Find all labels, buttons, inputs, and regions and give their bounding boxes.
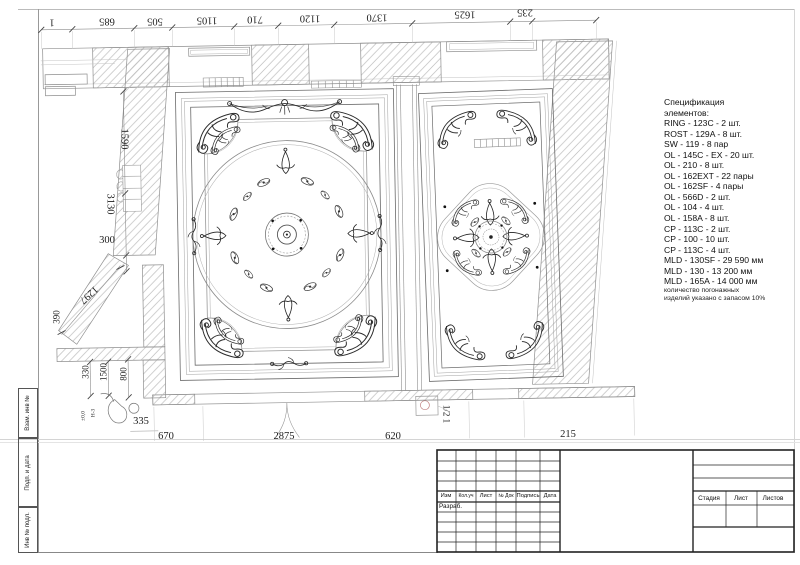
dim-lower-330: 330 <box>82 365 91 379</box>
margin-cell-podp: Подп. и дата <box>18 438 38 507</box>
dim-bottom-670: 670 <box>158 432 174 441</box>
margin-label-vzam: Взам. инв № <box>25 395 31 431</box>
tb-header-data: Дата <box>544 493 557 499</box>
tb-header-list2: Лист <box>734 495 748 502</box>
spec-item: RING - 123C - 2 шт. <box>664 118 765 129</box>
margin-label-podp: Подп. и дата <box>25 455 31 490</box>
dim-top-710: 710 <box>247 13 263 24</box>
dim-top-1370: 1370 <box>367 11 388 22</box>
right-medallion-rosette <box>452 198 530 276</box>
dim-lower-800: 800 <box>120 367 129 381</box>
left-ceiling-panel <box>175 75 398 381</box>
viewport-clip-line-2 <box>0 442 800 443</box>
margin-cell-vzam: Взам. инв № <box>18 388 38 438</box>
drawing-sheet: 1 685 505 1105 710 1120 1370 1625 235 15… <box>0 0 800 565</box>
tb-header-izm: Изм <box>441 493 452 499</box>
spec-item: SW - 119 - 8 пар <box>664 139 765 150</box>
spec-item: CP - 100 - 10 шт. <box>664 234 765 245</box>
tb-header-list: Лист <box>480 493 493 499</box>
tb-header-ndok: № Док <box>498 493 513 499</box>
tb-header-koluch: Кол.уч <box>459 493 474 499</box>
spec-item: CP - 113C - 4 шт. <box>664 245 765 256</box>
sheet-bottom-frame <box>38 552 438 553</box>
margin-label-inv: Инв № подл. <box>25 512 31 548</box>
tb-header-stadia: Стадия <box>698 495 720 502</box>
spec-item: OL - 158A - 8 шт. <box>664 213 765 224</box>
dim-top-505: 505 <box>147 15 163 26</box>
dim-top-edge: 1 <box>49 16 54 27</box>
tb-header-podpis: Подпись <box>517 493 540 499</box>
corner-ornament-icon <box>437 111 477 148</box>
elevation-mark-h: Н-3 <box>91 409 97 418</box>
ceiling-plan-viewport: 1 685 505 1105 710 1120 1370 1625 235 15… <box>0 0 800 441</box>
dim-lower-1500: 1500 <box>100 363 109 381</box>
spec-item: MLD - 130 - 13 200 мм <box>664 266 765 277</box>
corner-ornament-icon <box>497 109 537 146</box>
spec-item: ROST - 129A - 8 шт. <box>664 129 765 140</box>
spec-item: OL - 162EXT - 22 пары <box>664 171 765 182</box>
margin-cell-inv: Инв № подл. <box>18 507 38 553</box>
tb-razrab-label: Разраб. <box>439 503 462 510</box>
spec-note: изделий указано с запасом 10% <box>664 295 765 304</box>
spec-item: OL - 162SF - 4 пары <box>664 181 765 192</box>
corner-ornament-icon <box>445 324 485 361</box>
dim-bottom-620: 620 <box>385 432 401 441</box>
spec-item: OL - 145C - EX - 20 шт. <box>664 150 765 161</box>
spec-item: OL - 566D - 2 шт. <box>664 192 765 203</box>
spec-item: OL - 210 - 8 шт. <box>664 160 765 171</box>
spec-item: MLD - 130SF - 29 590 мм <box>664 255 765 266</box>
dim-top-1120: 1120 <box>300 12 321 23</box>
dim-left-3130: 3130 <box>104 194 115 215</box>
dim-bottom-215: 215 <box>560 430 576 441</box>
dim-lower-335: 335 <box>133 417 149 428</box>
bottom-wall <box>153 387 635 405</box>
dim-top-685: 685 <box>99 15 115 26</box>
spec-item: CP - 113C - 2 шт. <box>664 224 765 235</box>
spec-subtitle: элементов: <box>664 108 765 119</box>
garland-ornament-icon <box>228 99 342 116</box>
specification-block: Спецификация элементов: RING - 123C - 2 … <box>664 97 765 304</box>
dim-left-300: 300 <box>99 236 115 247</box>
spec-title: Спецификация <box>664 97 765 108</box>
spec-item: MLD - 165A - 14 000 мм <box>664 276 765 287</box>
dim-top-1625: 1625 <box>455 8 476 19</box>
dim-left-390: 390 <box>53 310 62 324</box>
dim-bottom-half: 1/2 1 <box>442 405 451 423</box>
elevation-mark-zero: ±0,0 <box>81 411 87 421</box>
dim-top-1105: 1105 <box>197 14 218 25</box>
left-wall <box>45 49 176 400</box>
tb-header-listov: Листов <box>763 495 784 502</box>
central-rosette <box>265 213 309 257</box>
dim-left-1590: 1590 <box>118 129 129 150</box>
dim-top-235: 235 <box>517 6 533 17</box>
dim-bottom-2875: 2875 <box>274 432 295 441</box>
spec-item: OL - 104 - 4 шт. <box>664 202 765 213</box>
dentil-strip <box>474 138 520 148</box>
